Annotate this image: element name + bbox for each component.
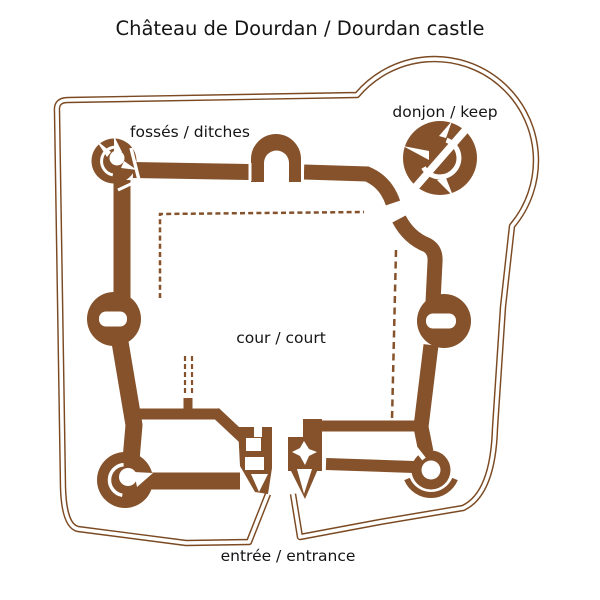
curtain-walls — [120, 170, 435, 481]
label-court: cour / court — [236, 329, 326, 347]
castle-plan-drawing — [0, 0, 600, 600]
north-gate-tower — [250, 134, 303, 182]
label-entrance: entrée / entrance — [221, 547, 356, 565]
castle-plan-canvas: Château de Dourdan / Dourdan castle foss… — [0, 0, 600, 600]
se-corner-tower — [407, 445, 455, 495]
nw-corner-tower — [92, 136, 140, 190]
keep-circle — [403, 121, 477, 196]
sw-corner-tower — [97, 452, 153, 508]
page-title: Château de Dourdan / Dourdan castle — [115, 17, 484, 40]
west-tower — [87, 292, 141, 346]
east-tower — [417, 294, 471, 348]
south-gatehouse-right — [288, 419, 322, 499]
inner-buildings — [130, 398, 419, 467]
label-keep: donjon / keep — [392, 103, 497, 121]
south-gatehouse-left — [238, 427, 272, 494]
label-ditches: fossés / ditches — [130, 123, 250, 141]
courtyard-dashed-lines — [160, 212, 396, 420]
